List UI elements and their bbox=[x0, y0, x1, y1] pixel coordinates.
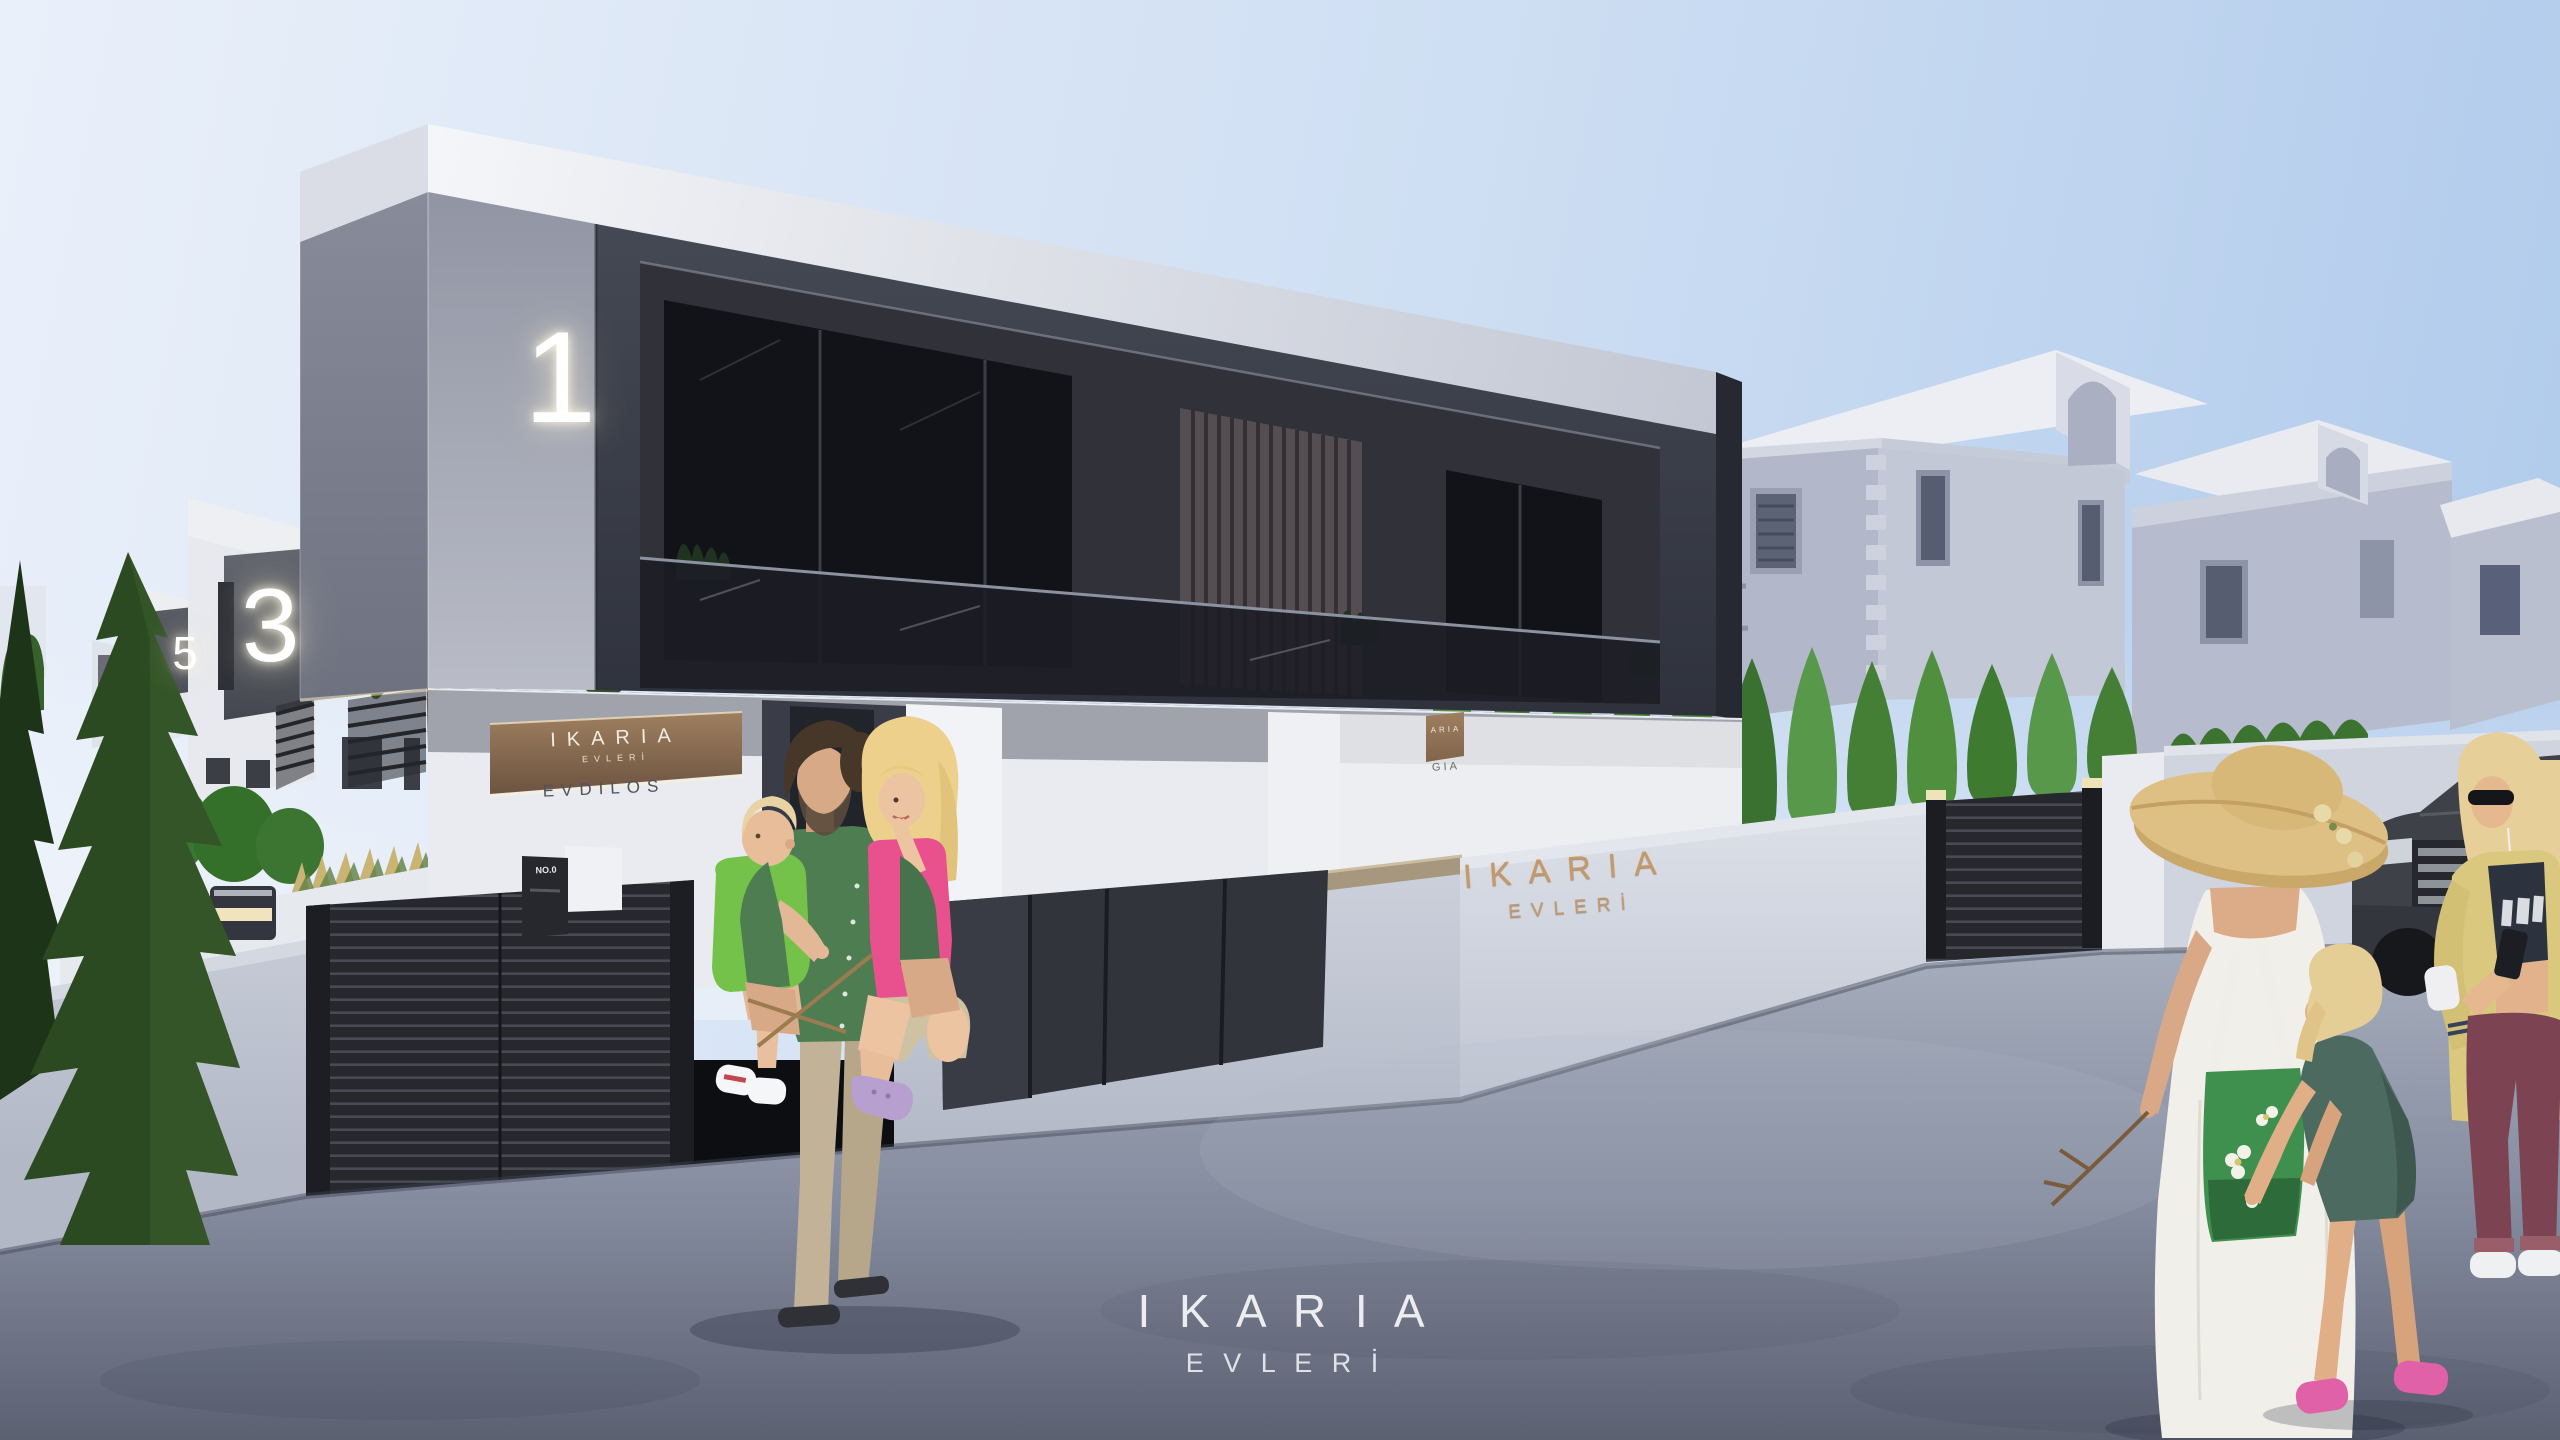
top-lettering bbox=[2501, 896, 2544, 927]
white-shoe bbox=[2518, 1250, 2560, 1276]
facade-right-return bbox=[1716, 372, 1742, 720]
house-number-5: 5 bbox=[160, 630, 210, 676]
gate-lamp bbox=[1926, 790, 1946, 800]
sunglasses bbox=[2468, 790, 2514, 805]
classical-house-b bbox=[2132, 420, 2452, 760]
side-return-facade bbox=[300, 192, 428, 702]
shuttered-window bbox=[1916, 470, 1950, 566]
shadow bbox=[2263, 1400, 2473, 1430]
watermark-line1: I K A R I A bbox=[1005, 1288, 1565, 1334]
mailbox-label: NO.0 bbox=[526, 865, 566, 875]
shuttered-window bbox=[2078, 500, 2104, 586]
window bbox=[2480, 565, 2520, 635]
neighbor-plaque-board bbox=[1426, 712, 1464, 762]
stair-railing bbox=[276, 688, 426, 790]
watermark-line2: E V L E R İ bbox=[1005, 1350, 1565, 1377]
shadow bbox=[690, 1306, 1020, 1354]
house-number-1: 1 bbox=[505, 312, 615, 442]
render-scene: 1 3 5 IKARIA EVLERİ EVDILOS ARIA GIA IKA… bbox=[0, 0, 2560, 1440]
white-shoe bbox=[2470, 1252, 2516, 1278]
house-number-3: 3 bbox=[220, 572, 320, 679]
sliding-gate bbox=[1926, 778, 2102, 962]
scene-artwork bbox=[0, 0, 2560, 1440]
classical-house-c bbox=[2440, 478, 2560, 730]
white-pouch bbox=[2423, 964, 2461, 1012]
gate-pillar bbox=[565, 846, 622, 912]
shuttered-window bbox=[1750, 488, 1802, 574]
gate-lamp bbox=[2082, 778, 2102, 788]
